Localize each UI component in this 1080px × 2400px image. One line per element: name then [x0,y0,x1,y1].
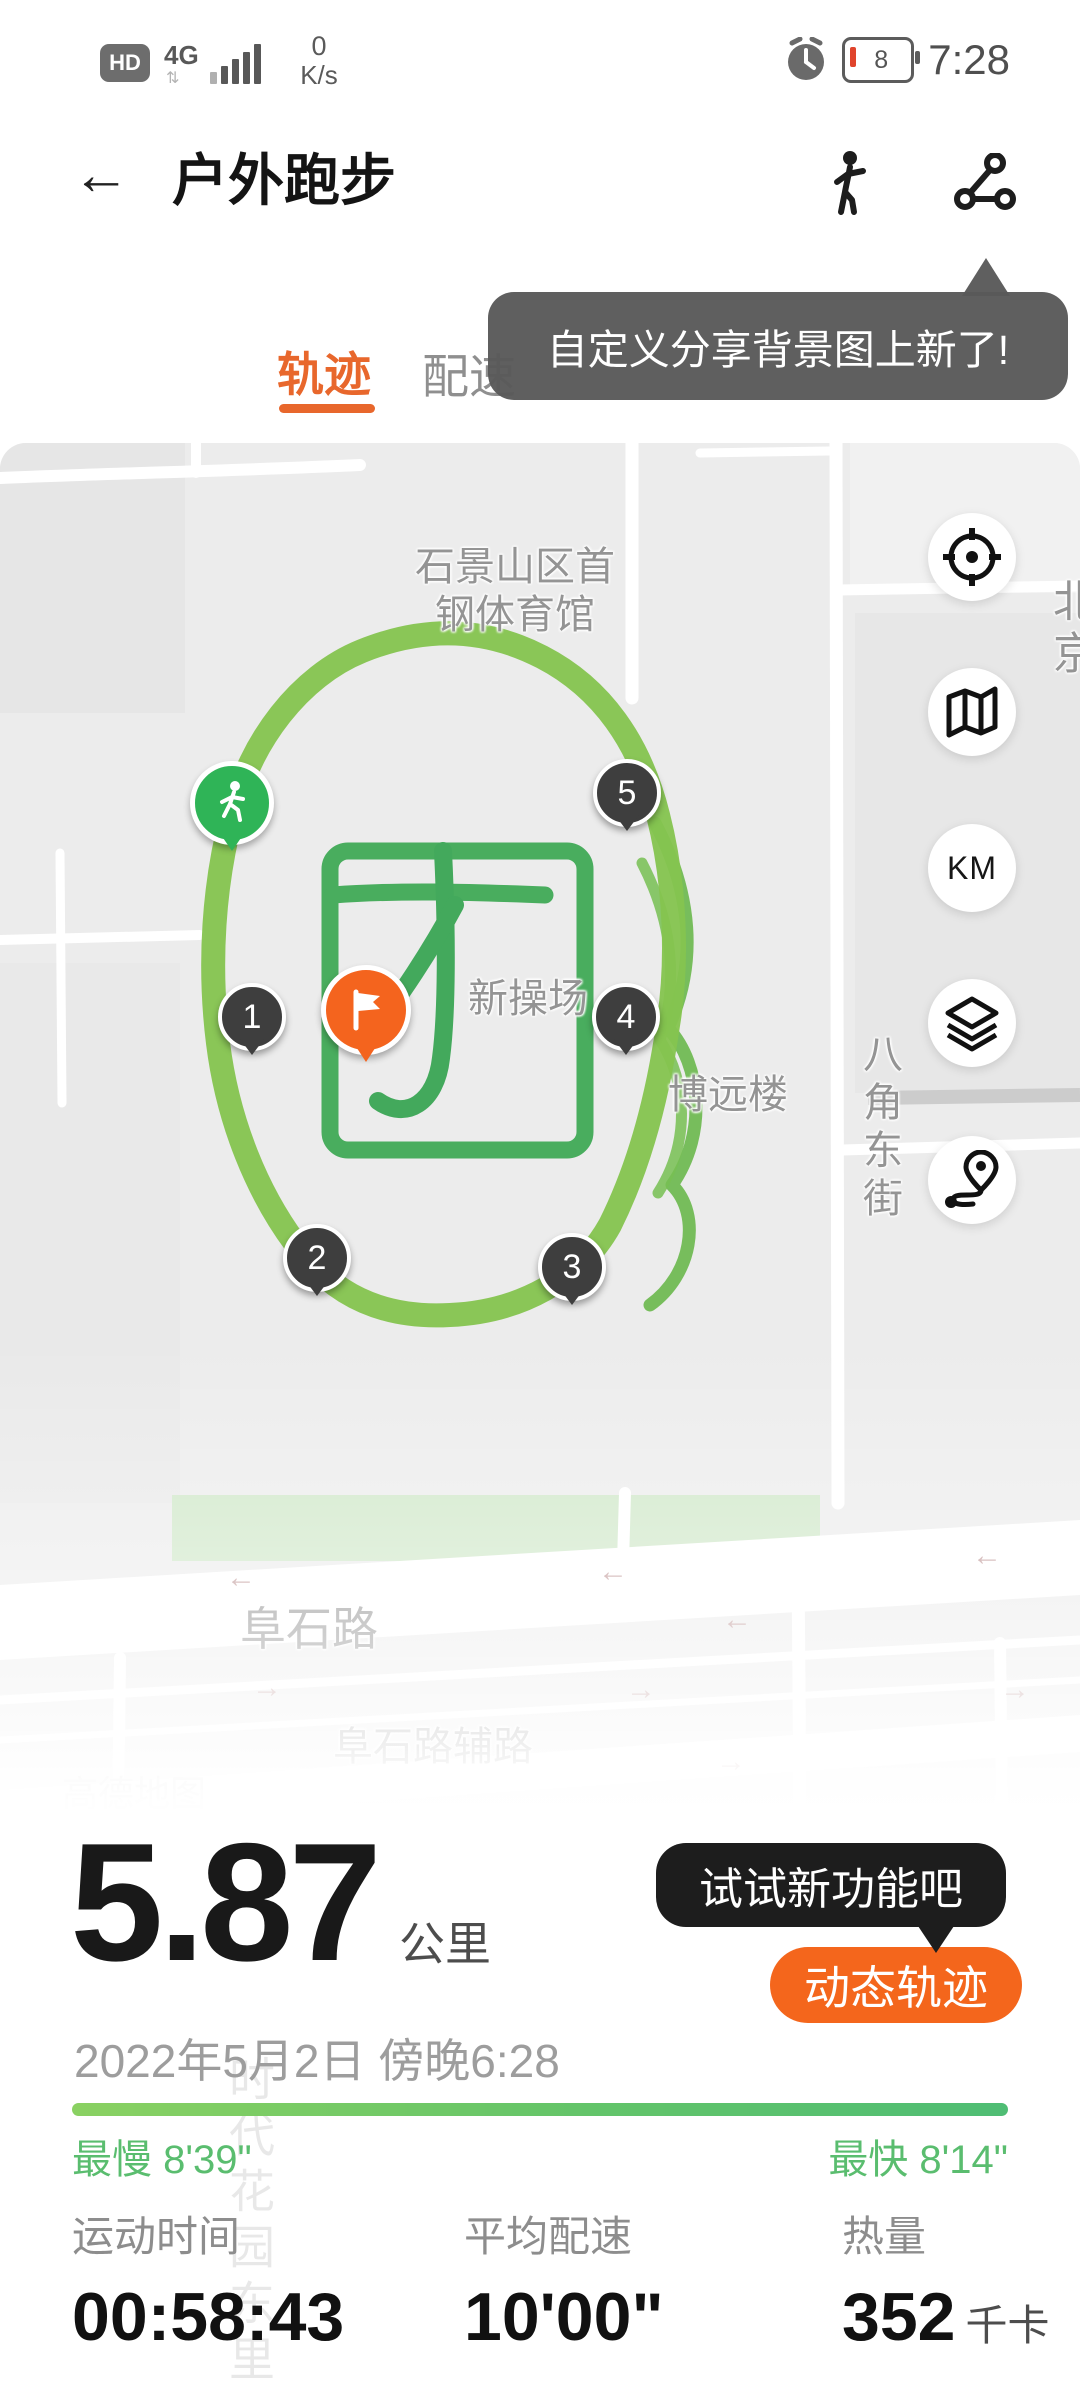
map-type-button[interactable] [928,668,1016,756]
feature-tooltip-arrow [916,1923,956,1953]
alarm-icon [784,37,828,83]
signal-strength-icon [210,44,266,84]
tab-track[interactable]: 轨迹 [277,336,371,405]
start-marker [190,761,274,845]
back-arrow-icon[interactable]: ← [72,140,130,210]
map-label-road-side: 阜石路辅路 [333,1723,533,1771]
route-map[interactable]: 石景山区首 钢体育馆 新操场 博远楼 八角东街 北京 阜石路 阜石路辅路 高德地… [0,443,1080,1815]
km-marker-1: 1 [218,983,286,1051]
km-marker-4: 4 [592,983,660,1051]
locate-button[interactable] [928,513,1016,601]
runner-pose-icon[interactable] [812,148,882,218]
road-arrow-icon: ← [226,1561,256,1595]
map-label-road-main: 阜石路 [240,1605,378,1653]
road-arrow-icon: → [716,1745,746,1779]
network-speed: 0 K/s [284,32,354,90]
distance-value: 5.87 [70,1815,377,1990]
activity-date: 2022年5月2日 傍晚6:28 [74,2025,560,2091]
hd-icon: HD [100,44,150,82]
stats-row: 运动时间 00:58:43 平均配速 10'00" 热量 352千卡 [72,2203,1032,2356]
network-arrows-icon: ⇅ [166,68,177,88]
km-marker-3: 3 [538,1233,606,1301]
active-tab-underline [279,404,375,413]
map-label-playground: 新操场 [468,975,588,1023]
finish-flag-icon [346,988,386,1032]
map-label-street: 八角东街 [855,1033,903,1225]
road-arrow-icon: ← [972,1539,1002,1573]
stat-calories: 热量 352千卡 [842,2203,1049,2356]
road-arrow-icon: ← [598,1555,628,1589]
battery-icon: 8 [842,37,914,83]
stat-duration: 运动时间 00:58:43 [72,2203,464,2356]
header: ← 户外跑步 [0,130,1080,250]
clock-time: 7:28 [928,36,1010,84]
km-toggle-button[interactable]: KM [928,824,1016,912]
feature-tooltip[interactable]: 试试新功能吧 [656,1843,1006,1927]
map-label-north: 北京 [1046,578,1080,682]
screen: HD 4G ⇅ 0 K/s 8 [0,0,1080,2400]
route-icon [941,1150,1003,1210]
promo-tooltip-arrow [962,258,1010,296]
fastest-pace-label: 最快 8'14" [828,2127,1008,2185]
road-arrow-icon: → [1000,1673,1030,1707]
layers-button[interactable] [928,979,1016,1067]
km-marker-5: 5 [593,759,661,827]
locate-icon [941,526,1003,588]
road-arrow-icon: → [252,1671,282,1705]
summary-panel: 时代花园东里 试试新功能吧 动态轨迹 5.87 公里 2022年5月2日 傍晚6… [0,1815,1080,2400]
pace-gradient-bar [72,2103,1008,2116]
share-route-icon[interactable] [950,148,1020,218]
promo-tooltip[interactable]: 自定义分享背景图上新了! [488,292,1068,400]
stat-avg-pace: 平均配速 10'00" [464,2203,842,2356]
km-marker-2: 2 [283,1224,351,1292]
layers-icon [942,993,1002,1053]
page-title: 户外跑步 [172,136,396,217]
map-label-stadium: 石景山区首 钢体育馆 [415,543,615,639]
folded-map-icon [943,685,1001,739]
map-attribution: 高德地图 [62,1765,206,1815]
runner-icon [211,780,253,826]
network-type-label: 4G [164,40,199,71]
map-label-building: 博远楼 [668,1071,788,1119]
route-detail-button[interactable] [928,1136,1016,1224]
end-marker [321,965,411,1055]
distance-unit: 公里 [399,1908,491,1974]
slowest-pace-label: 最慢 8'39" [72,2127,252,2185]
status-bar: HD 4G ⇅ 0 K/s 8 [0,0,1080,96]
dynamic-track-button[interactable]: 动态轨迹 [770,1947,1022,2023]
map-canvas [0,443,1080,1815]
road-arrow-icon: → [626,1673,656,1707]
road-arrow-icon: ← [722,1603,752,1637]
